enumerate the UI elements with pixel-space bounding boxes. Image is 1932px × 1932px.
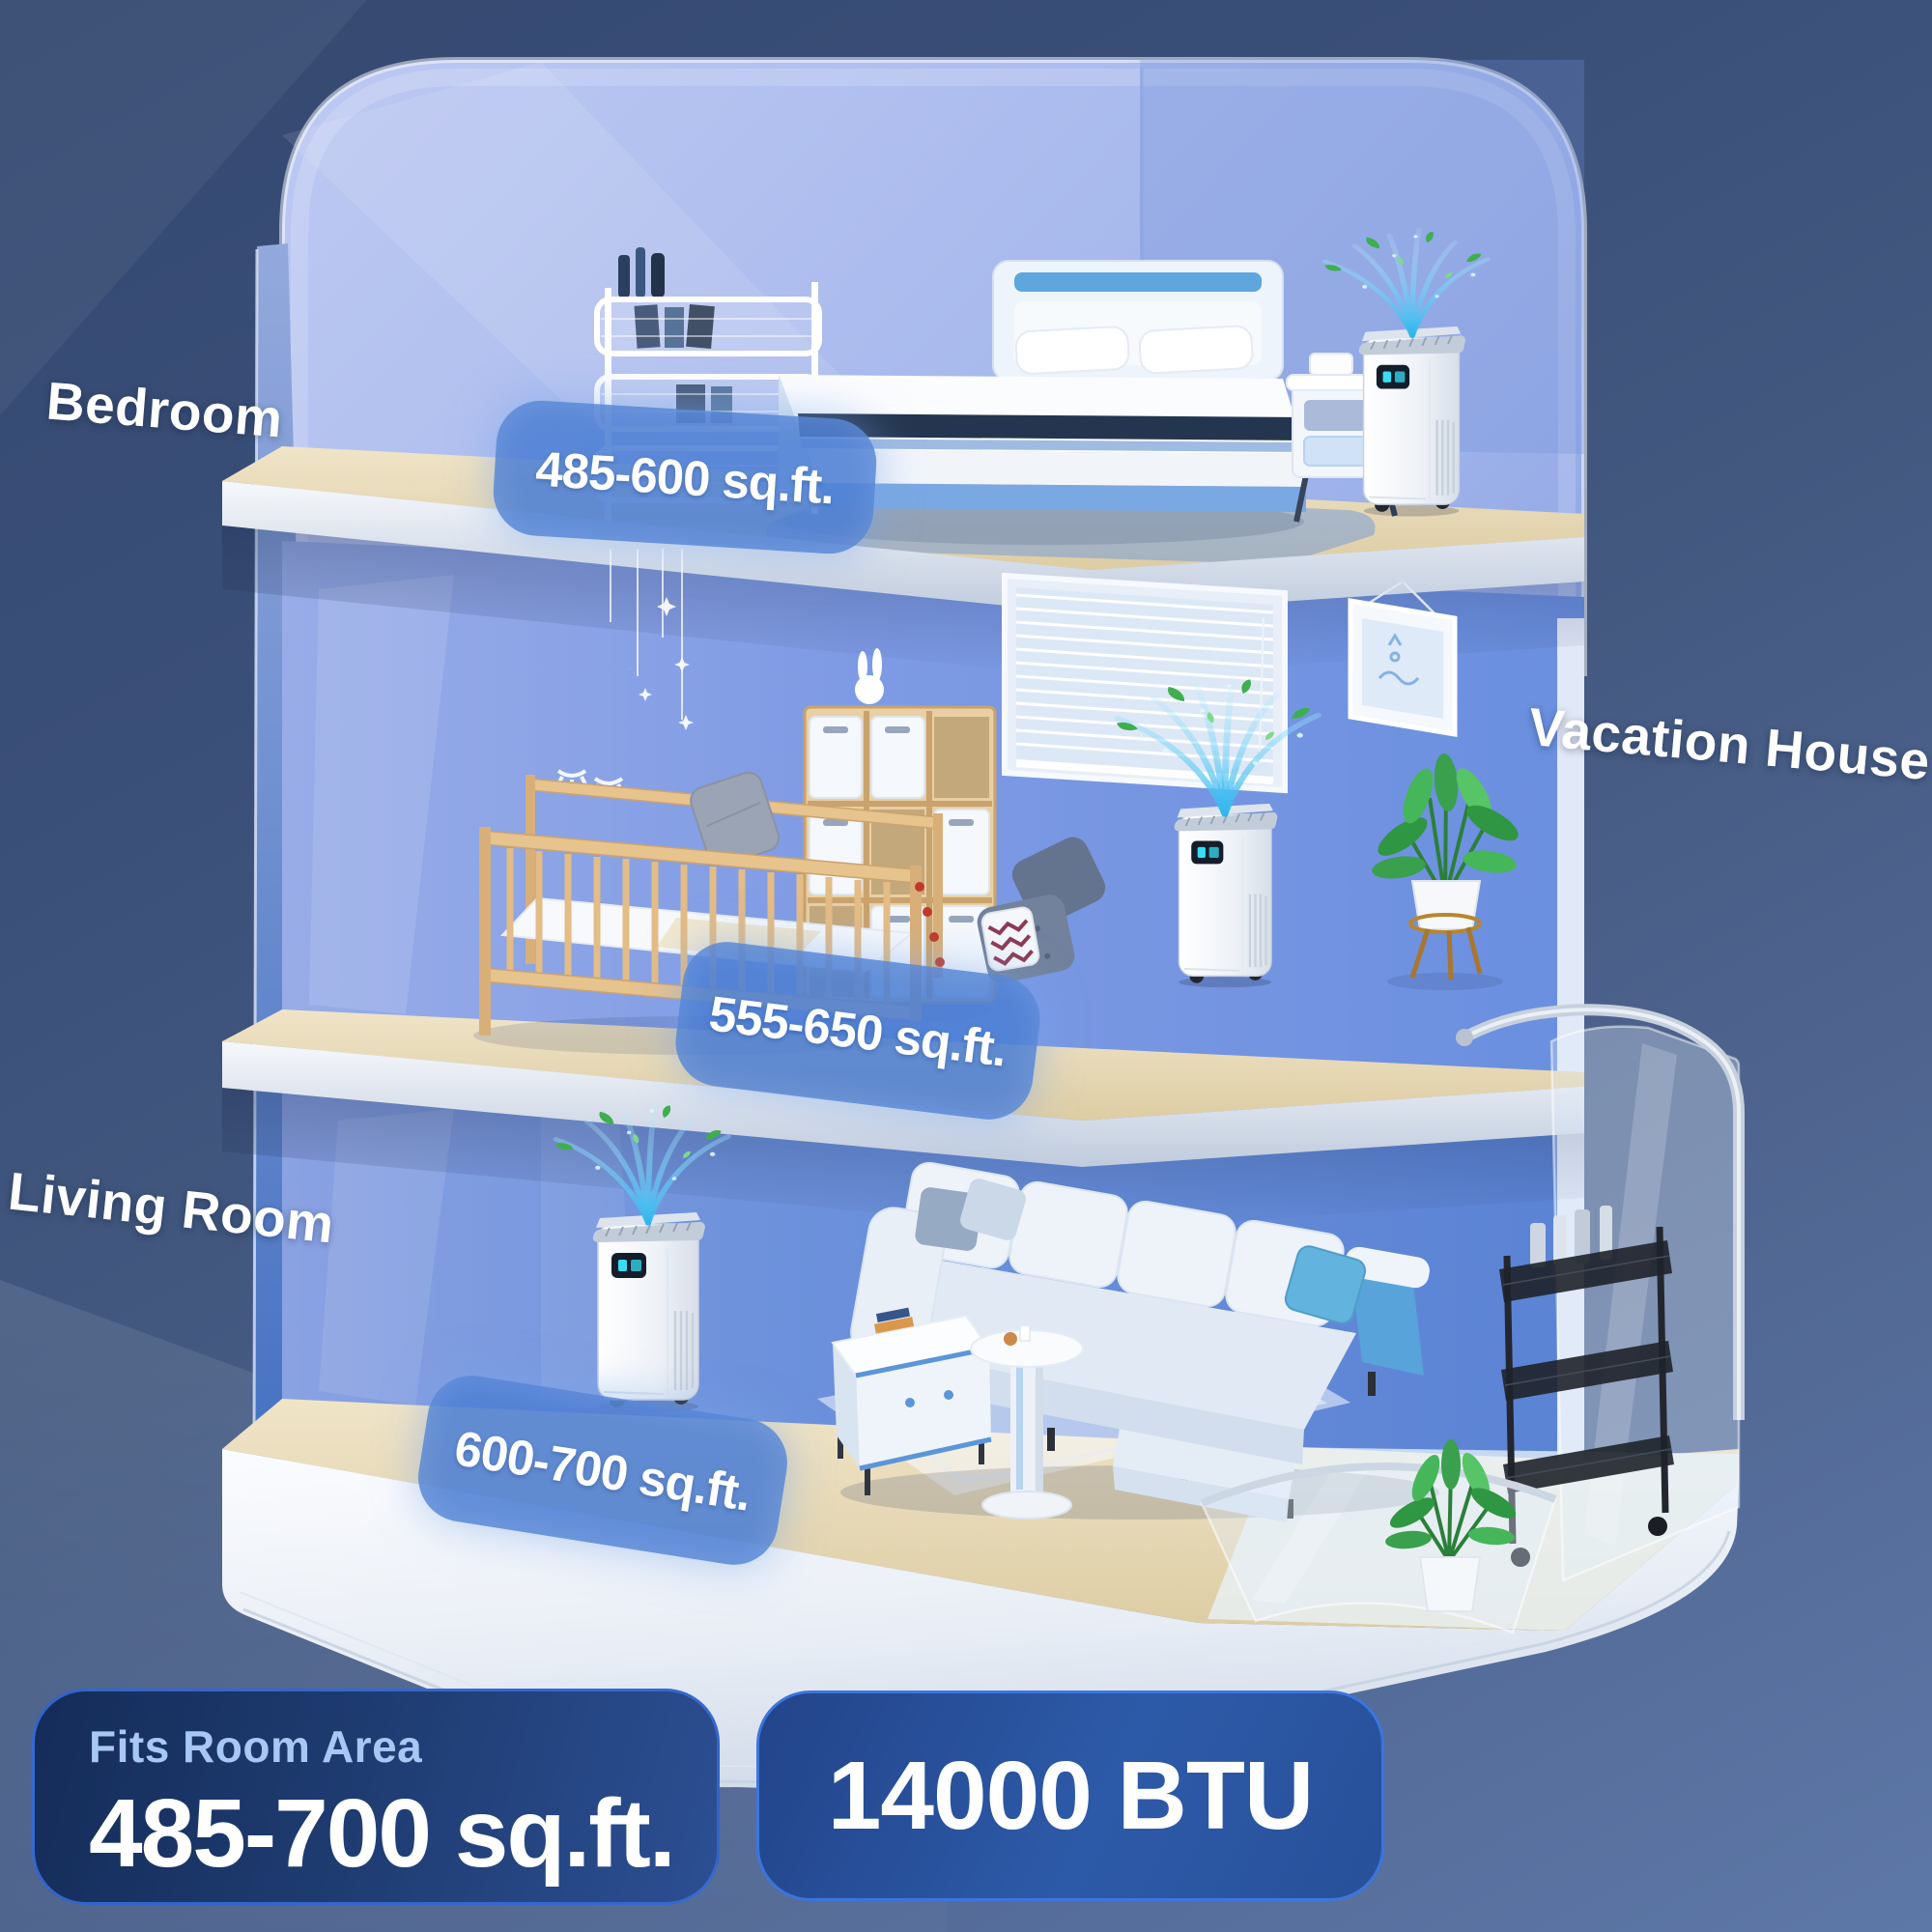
area-pill-text: 485-600 sq.ft. xyxy=(534,440,836,515)
house-cutaway-illustration xyxy=(0,0,1932,1932)
ac-unit-nursery xyxy=(1175,804,1278,987)
area-pill-text: 600-700 sq.ft. xyxy=(451,1419,755,1522)
infographic: Bedroom Vacation House Living Room 485-6… xyxy=(0,0,1932,1932)
badge-fits-room-area: Fits Room Area 485-700 sq.ft. xyxy=(32,1689,720,1905)
badge-fits-room-area-title: Fits Room Area xyxy=(89,1720,717,1773)
badge-btu-capacity: 14000 BTU xyxy=(756,1690,1384,1901)
chevron-pillow xyxy=(980,906,1040,972)
badge-fits-room-area-value: 485-700 sq.ft. xyxy=(89,1778,717,1889)
badge-btu-value: 14000 BTU xyxy=(828,1741,1313,1852)
ac-unit-bedroom xyxy=(1359,327,1465,517)
area-pill-text: 555-650 sq.ft. xyxy=(706,984,1009,1077)
area-pill-bedroom: 485-600 sq.ft. xyxy=(491,398,879,556)
window-blinds xyxy=(1005,576,1285,790)
ac-unit-living xyxy=(593,1212,705,1412)
